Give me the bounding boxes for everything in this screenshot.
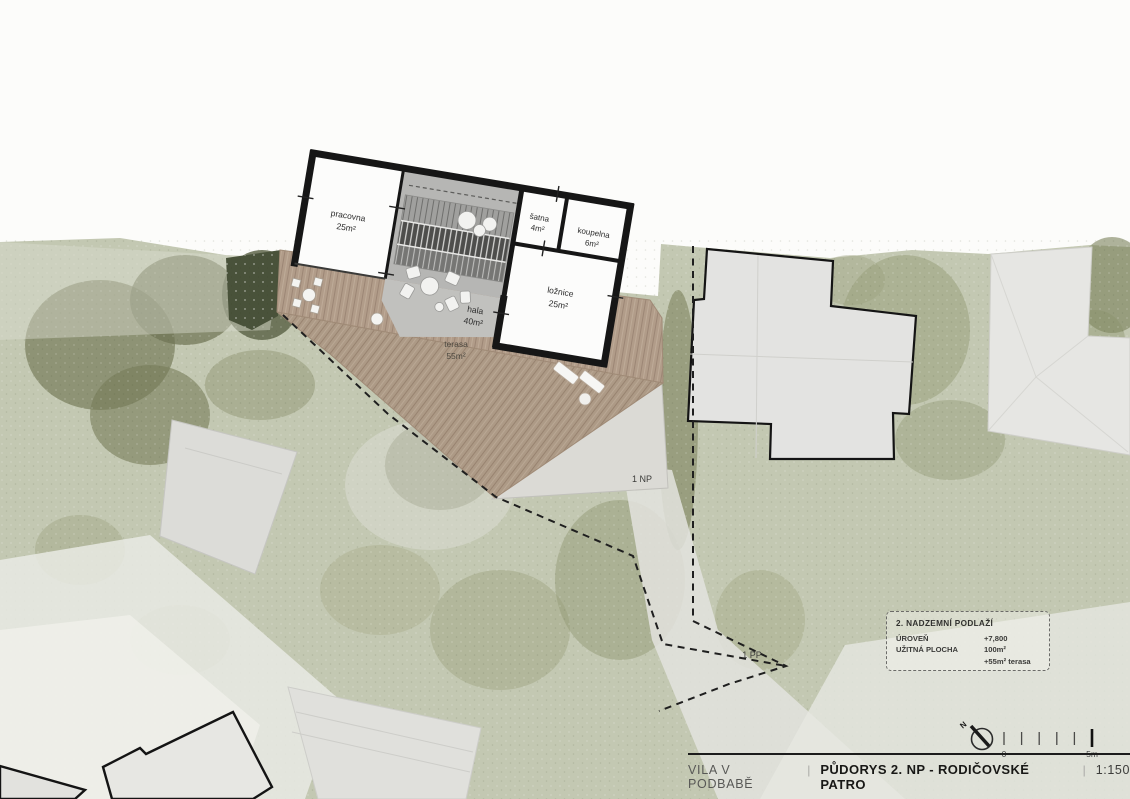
floor-info-title: 2. NADZEMNÍ PODLAŽÍ: [896, 619, 1040, 628]
level-marker-1pp: 1 PP: [742, 650, 762, 660]
room-area-terasa: 55m²: [446, 351, 466, 361]
floor-info-rows: ÚROVEŇ +7,800 UŽITNÁ PLOCHA 100m² +55m² …: [896, 633, 1040, 667]
floor-info-box: 2. NADZEMNÍ PODLAŽÍ ÚROVEŇ +7,800 UŽITNÁ…: [886, 611, 1050, 671]
info-label: UŽITNÁ PLOCHA: [896, 644, 984, 655]
info-label: [896, 656, 984, 667]
drawing-title: PŮDORYS 2. NP - RODIČOVSKÉ PATRO: [820, 762, 1072, 792]
level-marker-1np: 1 NP: [632, 474, 652, 484]
room-label-terasa: terasa: [444, 339, 468, 349]
info-value: +7,800: [984, 633, 1040, 644]
site-plan-drawing: pracovna 25m² hala 40m² šatna 4m² koupel…: [0, 0, 1130, 799]
hedge-speckle: [226, 250, 281, 330]
title-separator: |: [1083, 763, 1086, 777]
title-separator: |: [807, 763, 810, 777]
site-plan-sheet: pracovna 25m² hala 40m² šatna 4m² koupel…: [0, 0, 1130, 799]
info-label: ÚROVEŇ: [896, 633, 984, 644]
info-value: +55m² terasa: [984, 656, 1040, 667]
drawing-scale: 1:150: [1096, 763, 1130, 777]
project-name: VILA V PODBABĚ: [688, 763, 797, 791]
title-bar: VILA V PODBABĚ | PŮDORYS 2. NP - RODIČOV…: [688, 753, 1130, 792]
info-value: 100m²: [984, 644, 1040, 655]
